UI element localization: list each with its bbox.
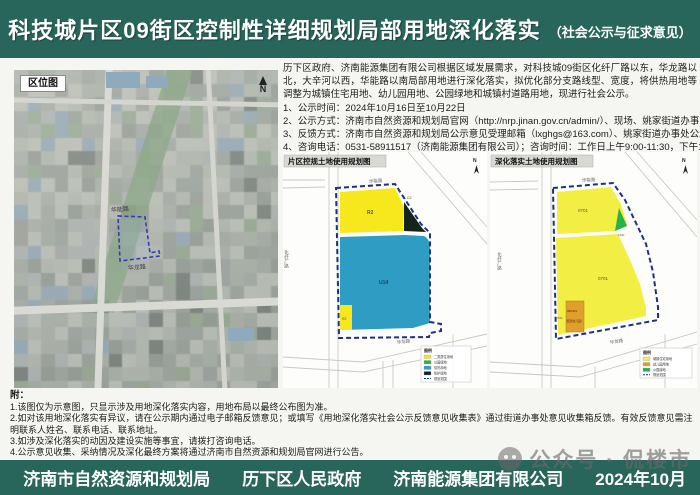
site-boundary-polygon	[118, 216, 160, 261]
north-arrow-triangle	[474, 165, 479, 174]
legend: 图例 城镇住宅用地 幼儿园用地 公园绿地 规划范围	[640, 348, 692, 378]
legend-swatch	[643, 368, 650, 372]
intro-paragraph: 历下区政府、济南能源集团有限公司根据区域发展需求，对科技城09街区化纤厂路以东，…	[283, 62, 697, 102]
header: 科技城片区09街区控制性详细规划局部用地深化落实 （社会公示与征求意见）	[0, 0, 700, 58]
north-arrow-triangle	[683, 165, 688, 174]
announcement-page: 科技城片区09街区控制性详细规划局部用地深化落实 （社会公示与征求意见） 华能路…	[0, 0, 700, 495]
control-plan-map: R2 G2 U14 R2 华能路 化纤厂路 华龙路 片区控规土地使用规划图 N …	[283, 152, 487, 388]
legend-label: 规划范围	[434, 376, 447, 381]
legend-swatch	[424, 361, 431, 365]
road-line	[421, 152, 487, 227]
north-letter: N	[682, 158, 686, 164]
legend-label: 公园绿地	[434, 360, 448, 365]
announcement-text: 历下区政府、济南能源集团有限公司根据区域发展需求，对科技城09街区化纤厂路以东，…	[283, 62, 697, 154]
item-feedback-method: 3、反馈方式：济南市自然资源和规划局公示意见受理邮箱（lxghgs@163.co…	[283, 128, 697, 141]
location-map-overlay: 华能路 华龙路	[14, 70, 278, 388]
road-label-bottom: 华龙路	[609, 337, 624, 346]
parcel-code: U14	[379, 280, 388, 286]
item-publicity-method: 2、公示方式：济南市自然资源和规划局官网（http://nrp.jinan.go…	[283, 115, 697, 128]
footer-org: 历下区人民政府	[242, 465, 361, 490]
parcel-code: 0701	[598, 276, 609, 281]
legend-swatch	[424, 355, 431, 359]
wechat-account-icon	[498, 447, 522, 471]
satellite-road-label-top: 华能路	[111, 205, 130, 214]
location-map-label: 区位图	[20, 75, 66, 92]
north-arrow-icon: N	[682, 158, 688, 174]
legend-title: 图例	[424, 347, 432, 353]
map-title: 深化落实土地使用规划图	[495, 156, 578, 166]
road-line	[490, 181, 538, 182]
road-label-top: 华能路	[369, 177, 383, 185]
legend: 图例 二类居住用地 公园绿地 供热用地 防护绿地 规划范围	[421, 346, 471, 382]
road-line	[637, 152, 697, 220]
north-arrow-icon: N	[256, 76, 270, 94]
legend-swatch	[643, 357, 650, 361]
parcel-code: R2	[342, 317, 347, 321]
refined-plan-map: 0701 1401 0701 0701 080404 (配建幼儿园) 华能路 化…	[490, 152, 697, 388]
road-label-top: 华能路	[582, 176, 596, 184]
watermark-text: 公众号 · 侃楼市	[529, 444, 692, 474]
road-line	[283, 187, 325, 188]
parcel-code: G2	[407, 196, 412, 200]
note-line: 1.该图仅为示意图，只显示涉及用地深化落实内容，用地布局以最终公布图为准。	[10, 402, 694, 413]
parcel-kindergarten	[566, 301, 584, 332]
legend-label: 供热用地	[434, 365, 448, 370]
north-arrow-icon: N	[473, 158, 479, 174]
parcel-code: 1401	[618, 233, 625, 237]
location-map: 华能路 华龙路 区位图 N	[14, 70, 278, 388]
north-letter: N	[473, 158, 477, 164]
map-title: 片区控规土地使用规划图	[288, 156, 371, 166]
item-publicity-time: 1、公示时间：2024年10月16日至10月22日	[283, 102, 697, 115]
page-subtitle: （社会公示与征求意见）	[549, 22, 692, 41]
parcel-note: (配建幼儿园)	[566, 319, 582, 323]
parcel-protective-green	[404, 202, 426, 232]
legend-label: 公园绿地	[653, 367, 667, 372]
legend-swatch	[424, 372, 431, 376]
satellite-road-label-bottom: 华龙路	[127, 262, 146, 272]
parcel-code: 080404	[567, 309, 577, 313]
footer-org: 济南市自然资源和规划局	[23, 465, 210, 490]
note-line: 2.如对该用地深化落实有异议，请在公示期内通过电子邮箱反馈意见；或填写《用地深化…	[10, 413, 694, 435]
legend-label: 二类居住用地	[434, 354, 454, 359]
legend-label: 城镇住宅用地	[653, 356, 673, 361]
legend-label: 幼儿园用地	[653, 362, 670, 367]
road-label-left: 化纤厂路	[284, 249, 290, 270]
parcel-code: 0701	[556, 316, 563, 320]
road-line	[490, 189, 538, 190]
road-label-bottom: 华龙路	[396, 337, 411, 346]
notes-label: 附：	[10, 390, 694, 401]
legend-swatch	[424, 366, 431, 370]
parcel-code: 0701	[578, 208, 589, 213]
parcel-code: R2	[367, 210, 374, 216]
legend-swatch	[643, 363, 650, 367]
legend-label: 规划范围	[653, 372, 666, 377]
legend-label: 防护绿地	[434, 371, 448, 376]
legend-title: 图例	[643, 349, 651, 355]
page-title: 科技城片区09街区控制性详细规划局部用地深化落实	[8, 13, 540, 45]
north-letter: N	[260, 84, 267, 94]
road-label-left: 化纤厂路	[497, 251, 503, 272]
watermark: 公众号 · 侃楼市	[498, 444, 692, 474]
